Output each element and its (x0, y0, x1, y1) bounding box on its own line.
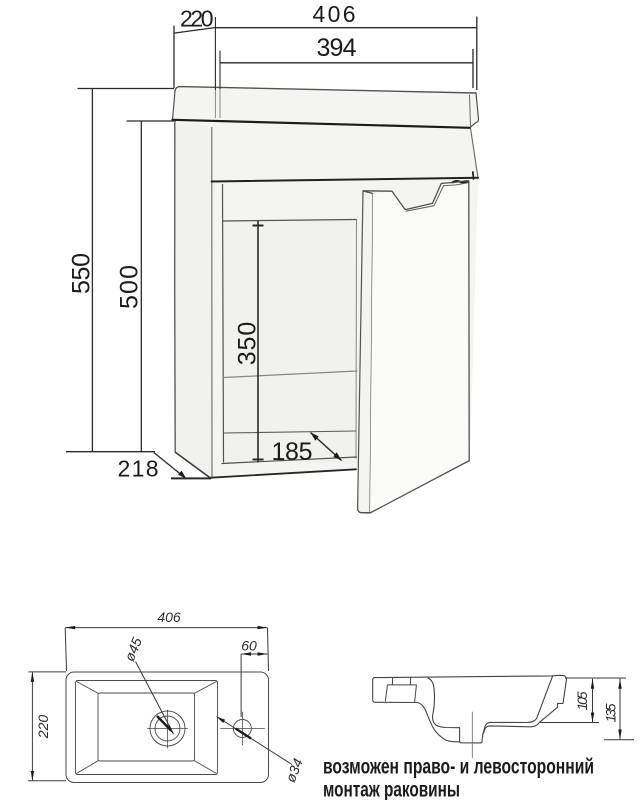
svg-text:394: 394 (317, 34, 357, 62)
svg-text:220: 220 (180, 6, 214, 32)
svg-text:500: 500 (115, 265, 143, 309)
svg-text:105: 105 (574, 691, 590, 710)
svg-text:ø45: ø45 (121, 635, 145, 664)
svg-text:218: 218 (118, 456, 159, 482)
svg-text:406: 406 (313, 1, 356, 27)
svg-text:185: 185 (272, 438, 313, 466)
svg-text:350: 350 (234, 322, 262, 366)
svg-text:550: 550 (68, 253, 96, 294)
svg-text:406: 406 (157, 609, 181, 625)
svg-text:220: 220 (35, 715, 51, 740)
svg-text:монтаж раковины: монтаж раковины (323, 779, 460, 800)
svg-text:60: 60 (241, 638, 257, 654)
svg-text:135: 135 (603, 703, 619, 722)
svg-text:возможен право- и левосторонни: возможен право- и левосторонний (323, 756, 594, 779)
